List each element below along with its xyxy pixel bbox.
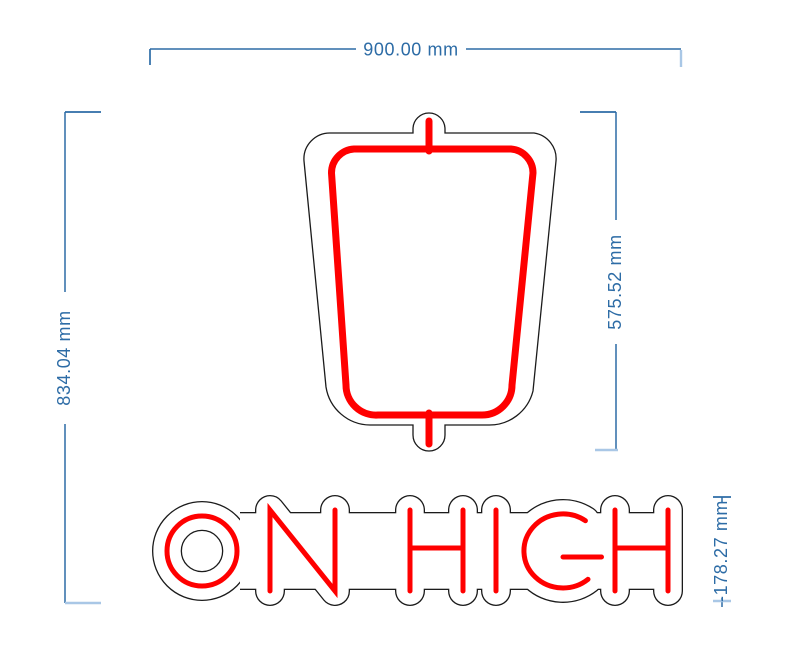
- dimension-text-height: -178.27 mm: [711, 497, 732, 607]
- dimension-overall-height: 834.04 mm: [54, 112, 101, 603]
- dimension-emblem-height-label: 575.52 mm: [605, 234, 625, 329]
- dimension-text-height-label: -178.27 mm: [711, 500, 731, 602]
- dimension-emblem-height: 575.52 mm: [580, 112, 625, 450]
- dimension-overall-width-label: 900.00 mm: [363, 40, 458, 60]
- drawing-svg: 900.00 mm 834.04 mm 575.52 mm: [0, 0, 785, 647]
- dimension-overall-height-label: 834.04 mm: [54, 310, 74, 405]
- keystone-emblem[interactable]: [304, 113, 556, 451]
- dimension-overall-width: 900.00 mm: [150, 40, 681, 68]
- sign-text-group[interactable]: [167, 510, 672, 591]
- cad-drawing-canvas: ON HIGH 900.00 mm 834.04 mm 575.52 mm: [0, 0, 785, 647]
